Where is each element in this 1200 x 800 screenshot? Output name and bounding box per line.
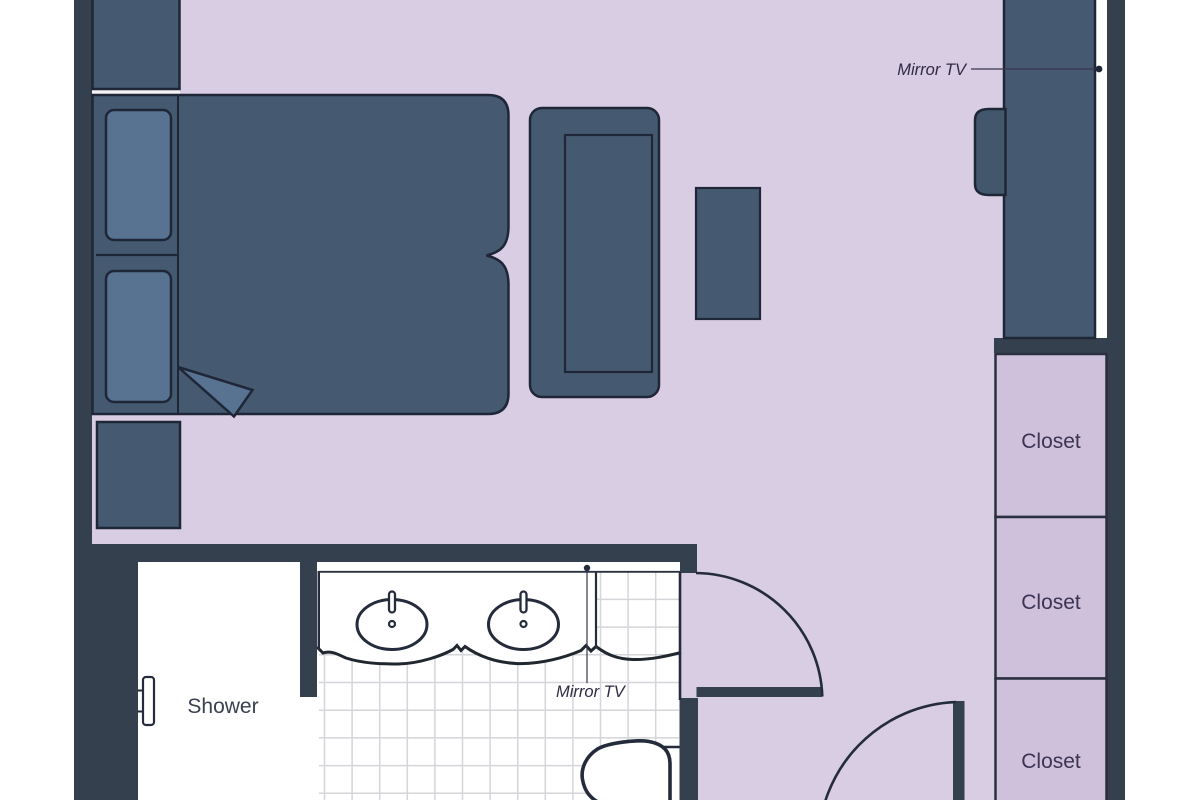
svg-text:Shower: Shower — [187, 695, 258, 718]
svg-text:Closet: Closet — [1021, 430, 1081, 453]
svg-text:Closet: Closet — [1021, 750, 1081, 773]
svg-text:Mirror TV: Mirror TV — [897, 61, 968, 79]
svg-text:Mirror TV: Mirror TV — [556, 683, 627, 701]
svg-text:Closet: Closet — [1021, 591, 1081, 614]
